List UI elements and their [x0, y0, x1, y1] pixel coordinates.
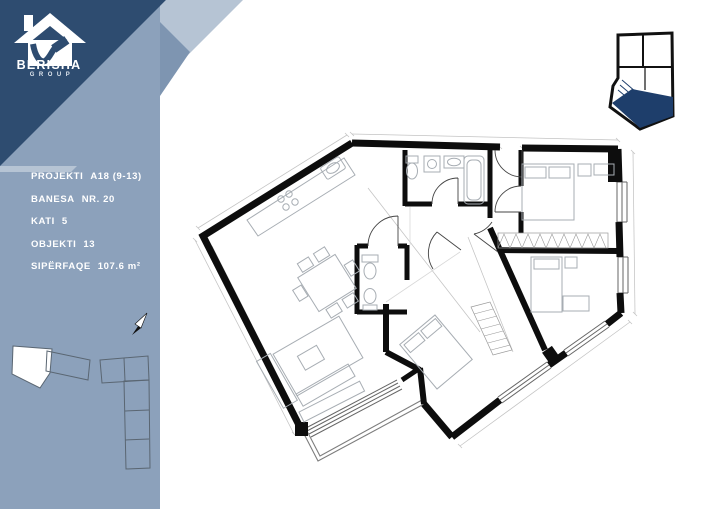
toilet: [406, 156, 418, 179]
info-label: KATI: [31, 216, 55, 227]
brand-name: BERISHA: [13, 58, 85, 72]
washing-machine: [424, 156, 440, 172]
info-label: OBJEKTI: [31, 239, 76, 250]
interior-walls: [357, 150, 618, 404]
info-label: PROJEKTI: [31, 171, 83, 182]
windows: [306, 182, 628, 437]
key-plan: [610, 33, 673, 129]
info-value: NR. 20: [82, 194, 115, 205]
info-value: 13: [83, 239, 95, 250]
info-label: SIPËRFAQE: [31, 261, 91, 272]
info-value: A18 (9-13): [90, 171, 141, 182]
furniture: [247, 156, 614, 422]
dimension-lines: [193, 132, 637, 448]
sink: [444, 156, 464, 168]
info-value: 5: [62, 216, 68, 227]
entrance-door: [495, 150, 522, 177]
project-info-row: KATI5: [31, 216, 142, 227]
info-value: 107.6 m²: [98, 261, 141, 272]
project-info: PROJEKTIA18 (9-13) BANESANR. 20 KATI5 OB…: [31, 171, 142, 272]
tv-unit: [299, 381, 365, 422]
wardrobe: [498, 233, 608, 248]
bed: [400, 315, 473, 389]
brand-subtitle: GROUP: [15, 72, 85, 78]
bedroom3-door: [428, 232, 461, 269]
bathroom-door: [432, 178, 458, 204]
project-info-row: SIPËRFAQE107.6 m²: [31, 261, 142, 272]
wc-sink: [363, 289, 377, 311]
project-info-row: OBJEKTI13: [31, 239, 142, 250]
bedroom1-door: [495, 186, 521, 212]
bathtub: [464, 156, 484, 204]
sofa: [257, 314, 369, 415]
project-info-row: PROJEKTIA18 (9-13): [31, 171, 142, 182]
bed: [531, 257, 589, 312]
bed: [522, 164, 614, 220]
info-label: BANESA: [31, 194, 75, 205]
wc-toilet: [362, 255, 378, 279]
floor-plan: [193, 132, 637, 461]
outer-walls: [203, 143, 621, 437]
floor-plan-sheet: BERISHA GROUP PROJEKTIA18 (9-13) BANESAN…: [0, 0, 720, 509]
project-info-row: BANESANR. 20: [31, 194, 142, 205]
